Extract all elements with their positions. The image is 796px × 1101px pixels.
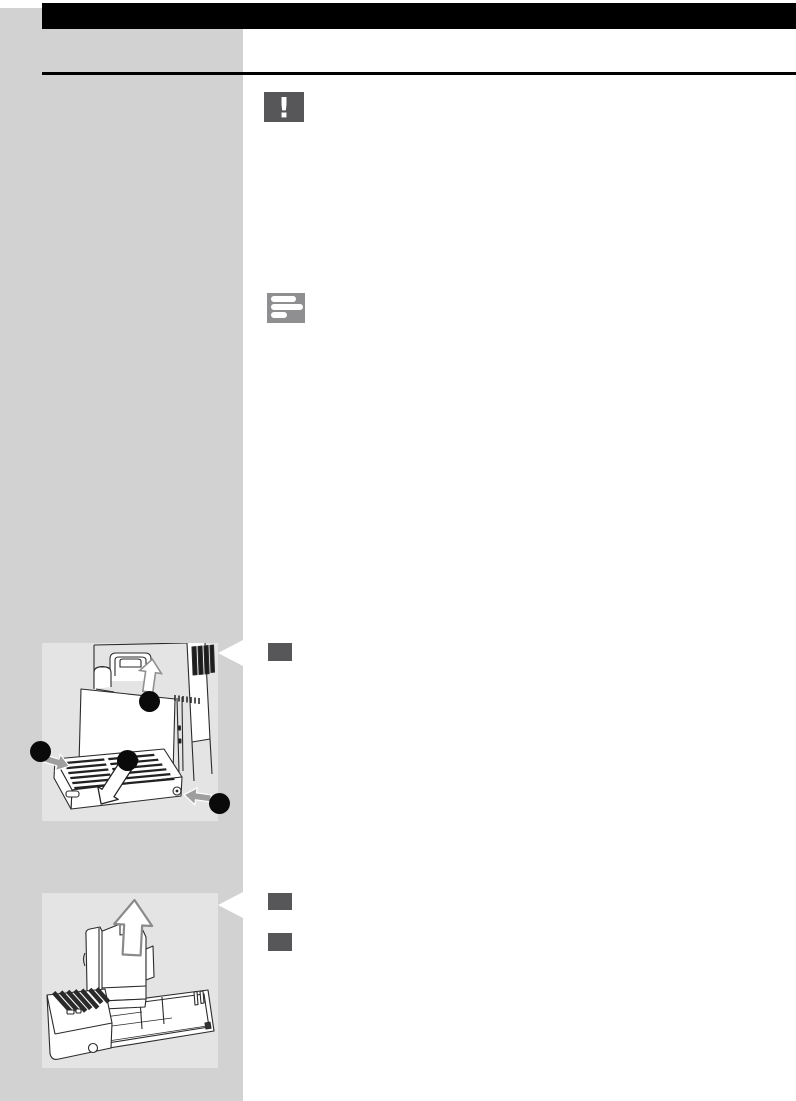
- callout-dot-1: [139, 691, 160, 712]
- figure1-pointer-triangle: [218, 640, 243, 666]
- manual-page: { "page": { "kind": "user-manual-instruc…: [0, 0, 796, 1101]
- gray-arrow-right: [183, 786, 212, 807]
- figure2-pointer-triangle: [218, 892, 243, 918]
- figure-grounds-container-removal: [42, 893, 218, 1068]
- callout-dot-2: [30, 741, 51, 762]
- step-marker-3: [268, 933, 292, 951]
- figure-machine-front-drip-tray: [42, 643, 218, 821]
- note-text-lines-icon: [267, 293, 305, 323]
- callout-dot-3: [117, 750, 138, 771]
- chapter-header-bar: [42, 3, 796, 29]
- step-marker-2: [268, 893, 292, 910]
- warning-exclamation-glyph: !: [264, 92, 304, 122]
- step-marker-1: [268, 643, 292, 661]
- heading-rule: [42, 72, 796, 75]
- warning-exclamation-icon: !: [264, 92, 304, 122]
- callout-dot-4: [209, 793, 230, 814]
- svg-text:!: !: [278, 92, 291, 122]
